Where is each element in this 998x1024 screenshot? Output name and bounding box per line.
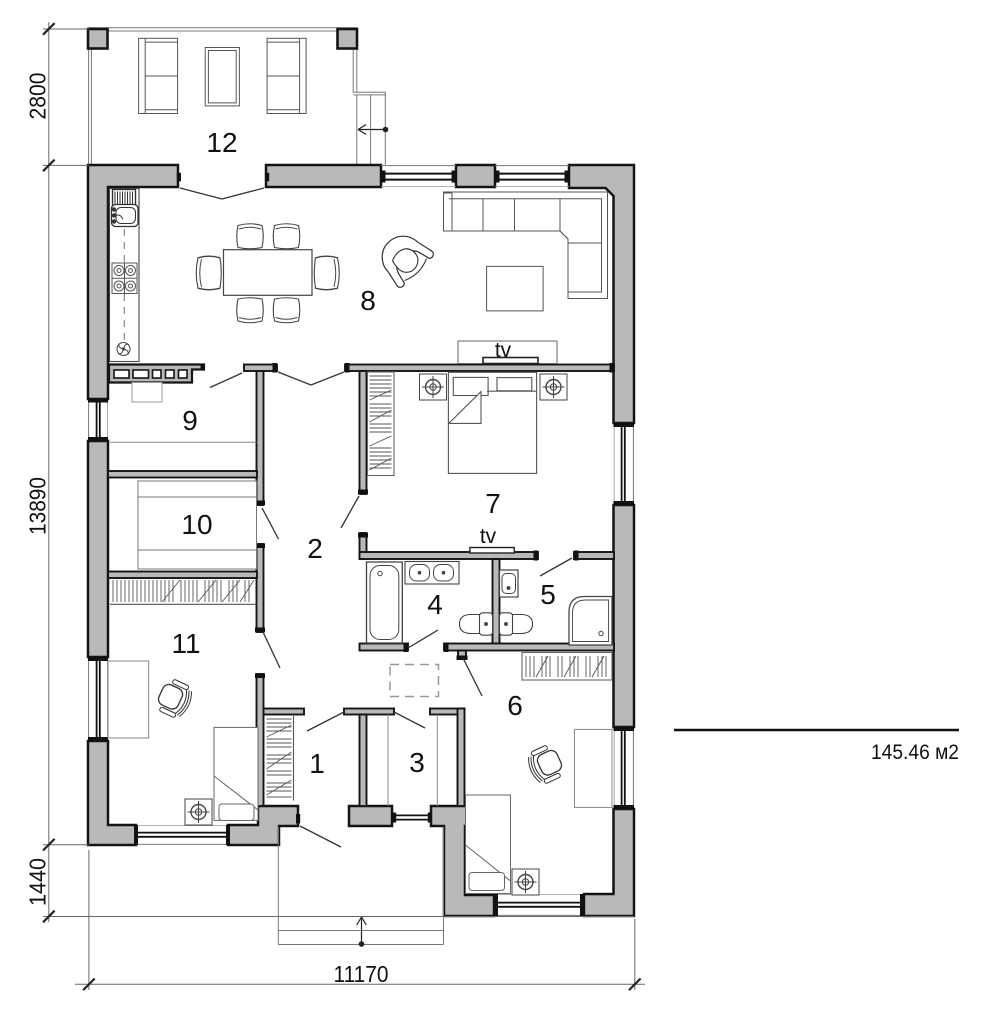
svg-text:8: 8 xyxy=(360,285,376,316)
svg-text:145.46 м2: 145.46 м2 xyxy=(871,741,959,764)
svg-text:2: 2 xyxy=(307,533,323,564)
svg-text:1: 1 xyxy=(309,748,325,779)
svg-text:10: 10 xyxy=(181,509,212,540)
svg-text:7: 7 xyxy=(485,488,501,519)
svg-text:tv: tv xyxy=(495,339,512,362)
svg-text:11: 11 xyxy=(171,628,200,659)
svg-text:12: 12 xyxy=(206,127,237,158)
svg-text:6: 6 xyxy=(507,690,523,721)
svg-text:2800: 2800 xyxy=(25,73,51,120)
svg-text:4: 4 xyxy=(427,589,443,620)
svg-text:9: 9 xyxy=(182,405,198,436)
svg-text:5: 5 xyxy=(540,579,556,610)
svg-text:tv: tv xyxy=(480,525,497,548)
svg-text:11170: 11170 xyxy=(334,961,389,987)
svg-text:13890: 13890 xyxy=(25,477,51,535)
svg-text:3: 3 xyxy=(409,747,425,778)
svg-text:1440: 1440 xyxy=(25,858,51,906)
